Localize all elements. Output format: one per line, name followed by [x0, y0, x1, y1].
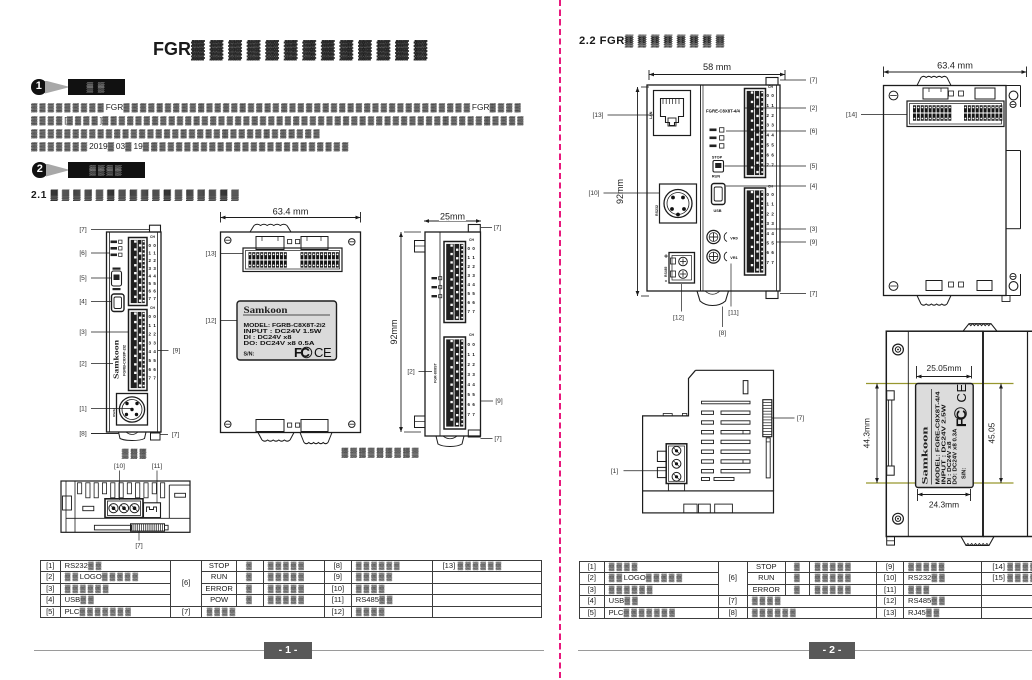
svg-text:C: C [954, 393, 969, 402]
svg-text:[13]: [13] [593, 112, 604, 119]
svg-text:[3]: [3] [810, 226, 817, 233]
svg-text:E: E [954, 384, 969, 393]
svg-text:CH: CH [768, 185, 773, 189]
svg-text:6 6: 6 6 [767, 250, 775, 255]
svg-text:3 3: 3 3 [468, 273, 476, 278]
svg-text:3 3: 3 3 [767, 123, 775, 128]
svg-text:4 4: 4 4 [767, 133, 775, 138]
svg-text:[14]: [14] [846, 112, 857, 119]
svg-text:[1]: [1] [79, 406, 86, 413]
svg-text:[5]: [5] [79, 275, 86, 282]
svg-text:25mm: 25mm [440, 212, 465, 222]
svg-text:2 2: 2 2 [149, 258, 157, 263]
svg-text:[7]: [7] [810, 291, 817, 298]
svg-text:DO: DC24V x8 0.3A: DO: DC24V x8 0.3A [953, 429, 959, 485]
svg-text:6 6: 6 6 [149, 367, 157, 372]
svg-text:[11]: [11] [728, 310, 739, 317]
svg-text:USB: USB [713, 209, 721, 213]
svg-text:4 4: 4 4 [468, 382, 476, 387]
svg-text:+: + [664, 254, 668, 261]
svg-text:[9]: [9] [495, 398, 502, 405]
svg-text:[7]: [7] [494, 436, 501, 443]
svg-text:7 7: 7 7 [468, 309, 476, 314]
svg-text:5 5: 5 5 [149, 281, 157, 286]
svg-text:VR0: VR0 [730, 236, 737, 240]
svg-text:3 3: 3 3 [468, 372, 476, 377]
svg-text:1 1: 1 1 [468, 255, 476, 260]
svg-text:3 3: 3 3 [149, 266, 157, 271]
svg-text:4 4: 4 4 [149, 273, 157, 278]
svg-text:63.4 mm: 63.4 mm [937, 61, 973, 71]
svg-text:Samkoon: Samkoon [920, 426, 930, 484]
svg-text:[2]: [2] [810, 105, 817, 112]
svg-text:[9]: [9] [810, 239, 817, 246]
svg-text:[12]: [12] [673, 315, 684, 322]
svg-text:44.3mm: 44.3mm [862, 418, 872, 448]
svg-text:2 2: 2 2 [767, 113, 775, 118]
svg-text:[2]: [2] [79, 361, 86, 368]
svg-text:[8]: [8] [719, 330, 726, 337]
svg-text:0 0: 0 0 [468, 246, 476, 251]
svg-text:5 5: 5 5 [767, 143, 775, 148]
svg-text:RS232: RS232 [112, 408, 116, 417]
svg-text:4 4: 4 4 [149, 349, 157, 354]
svg-text:[1]: [1] [611, 468, 618, 475]
svg-text:45.05: 45.05 [987, 422, 997, 443]
svg-text:3 3: 3 3 [149, 340, 157, 345]
svg-text:[4]: [4] [810, 183, 817, 190]
svg-text:[10]: [10] [114, 463, 125, 470]
svg-text:[7]: [7] [494, 225, 501, 232]
svg-text:2 2: 2 2 [468, 362, 476, 367]
svg-text:5 5: 5 5 [767, 241, 775, 246]
svg-text:5 5: 5 5 [468, 291, 476, 296]
svg-text:25.05mm: 25.05mm [927, 363, 962, 373]
svg-text:5 5: 5 5 [149, 358, 157, 363]
svg-text:7 7: 7 7 [767, 260, 775, 265]
svg-text:Samkoon: Samkoon [112, 340, 121, 379]
svg-text:[4]: [4] [79, 299, 86, 306]
svg-text:5 5: 5 5 [468, 392, 476, 397]
svg-text:S/N:: S/N: [962, 468, 968, 479]
svg-text:92mm: 92mm [615, 179, 625, 204]
svg-text:CH: CH [150, 306, 155, 310]
svg-text:CH: CH [150, 235, 155, 239]
svg-text:[8]: [8] [79, 431, 86, 438]
svg-text:RS485: RS485 [664, 267, 668, 277]
svg-text:[13]: [13] [206, 251, 217, 258]
svg-text:[12]: [12] [206, 318, 217, 325]
svg-text:[7]: [7] [135, 543, 142, 550]
svg-text:7 7: 7 7 [149, 376, 157, 381]
svg-text:[6]: [6] [79, 250, 86, 257]
svg-text:[9]: [9] [173, 348, 180, 355]
svg-text:[7]: [7] [172, 432, 179, 439]
svg-text:VR1: VR1 [730, 256, 737, 260]
svg-text:STOP: STOP [712, 156, 723, 160]
svg-text:RUN: RUN [712, 175, 720, 179]
svg-text:[6]: [6] [810, 128, 817, 135]
svg-text:1 1: 1 1 [468, 352, 476, 357]
svg-text:3 3: 3 3 [767, 221, 775, 226]
svg-text:[2]: [2] [407, 369, 414, 376]
svg-text:4 4: 4 4 [767, 231, 775, 236]
svg-text:6 6: 6 6 [468, 300, 476, 305]
svg-text:2 2: 2 2 [468, 264, 476, 269]
svg-text:7 7: 7 7 [767, 162, 775, 167]
svg-text:0 0: 0 0 [468, 342, 476, 347]
svg-text:1 1: 1 1 [767, 202, 775, 207]
svg-text:CH: CH [469, 238, 474, 242]
svg-text:2 2: 2 2 [149, 332, 157, 337]
svg-text:CH: CH [469, 333, 474, 337]
svg-text:0 0: 0 0 [767, 93, 775, 98]
svg-text:[7]: [7] [797, 415, 804, 422]
svg-text:FGRB-C8X8P-2I2: FGRB-C8X8P-2I2 [123, 345, 127, 376]
svg-text:58 mm: 58 mm [703, 62, 731, 72]
svg-text:E: E [323, 345, 332, 360]
svg-text:4 4: 4 4 [468, 282, 476, 287]
svg-text:[11]: [11] [152, 463, 163, 470]
svg-text:CH: CH [768, 85, 773, 89]
svg-text:63.4 mm: 63.4 mm [273, 207, 309, 217]
svg-text:FGRE-C8X8T-4/4: FGRE-C8X8T-4/4 [706, 109, 741, 114]
svg-text:1 1: 1 1 [767, 103, 775, 108]
svg-text:1 1: 1 1 [149, 323, 157, 328]
svg-text:RS232: RS232 [655, 205, 659, 216]
svg-text:[3]: [3] [79, 329, 86, 336]
svg-text:[5]: [5] [810, 163, 817, 170]
svg-text:7 7: 7 7 [468, 412, 476, 417]
svg-text:[7]: [7] [79, 227, 86, 234]
svg-text:0 0: 0 0 [149, 314, 157, 319]
svg-text:C: C [314, 345, 323, 360]
svg-text:7 7: 7 7 [149, 296, 157, 301]
svg-text:1 1: 1 1 [149, 251, 157, 256]
svg-text:6 6: 6 6 [468, 402, 476, 407]
svg-text:S/N:: S/N: [244, 352, 255, 358]
svg-text:FGR-8X8ST: FGR-8X8ST [434, 362, 438, 383]
svg-text:Samkoon: Samkoon [244, 305, 288, 315]
svg-text:24.3mm: 24.3mm [929, 500, 959, 510]
svg-text:2 2: 2 2 [767, 211, 775, 216]
svg-text:6 6: 6 6 [149, 289, 157, 294]
svg-text:[7]: [7] [810, 77, 817, 84]
svg-text:6 6: 6 6 [767, 152, 775, 157]
svg-text:[10]: [10] [589, 190, 600, 197]
svg-text:0 0: 0 0 [149, 243, 157, 248]
svg-text:0 0: 0 0 [767, 192, 775, 197]
svg-text:92mm: 92mm [389, 319, 399, 344]
